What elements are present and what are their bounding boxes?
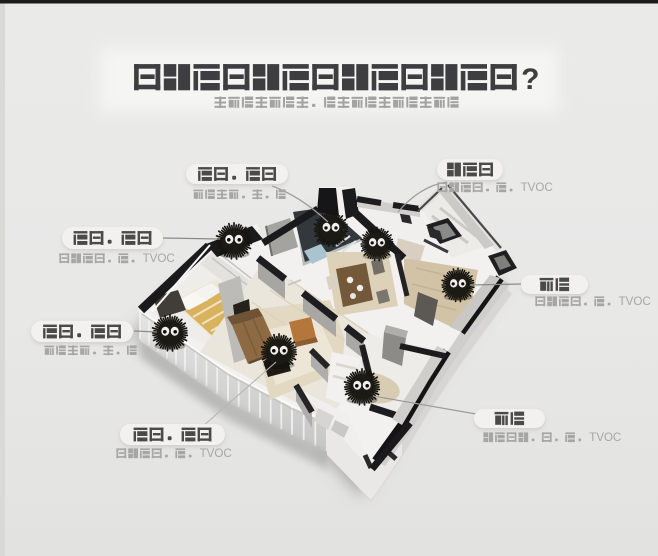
svg-text:TVOC: TVOC <box>589 432 621 444</box>
svg-text:TVOC: TVOC <box>521 181 553 194</box>
svg-text:?: ? <box>521 63 539 96</box>
svg-text:TVOC: TVOC <box>619 295 651 308</box>
svg-text:TVOC: TVOC <box>143 252 175 265</box>
svg-text:TVOC: TVOC <box>200 447 232 460</box>
